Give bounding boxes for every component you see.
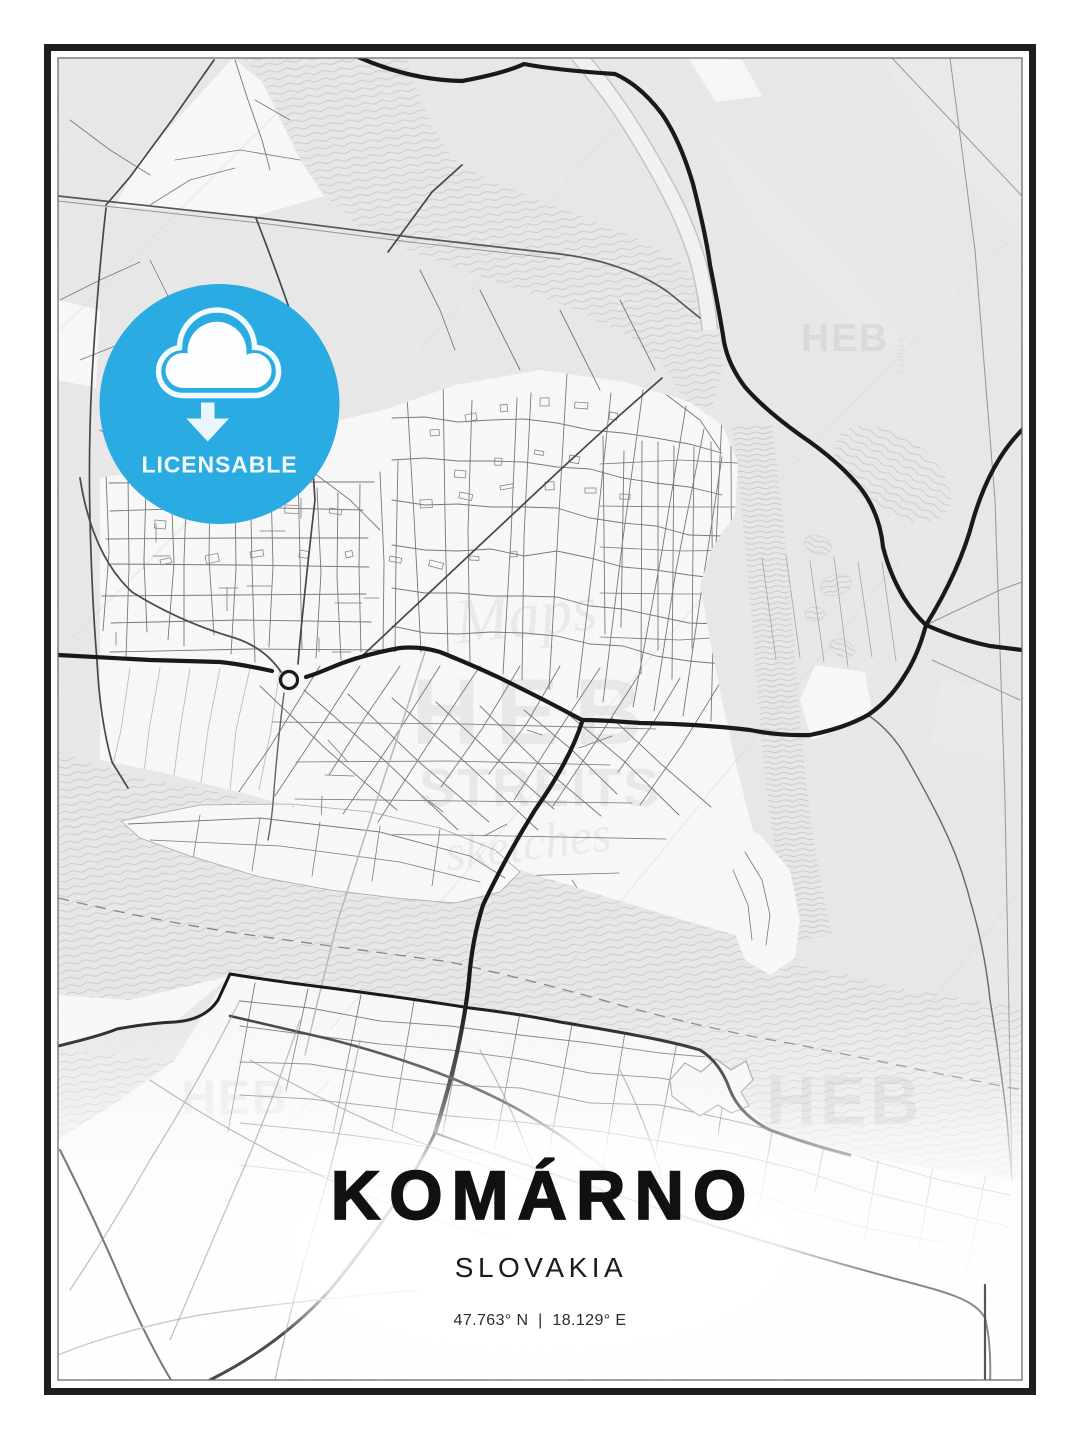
svg-text:47.763° N | 18.129° E: 47.763° N | 18.129° E (454, 1312, 627, 1329)
svg-text:KOMÁRNO: KOMÁRNO (331, 1157, 756, 1234)
svg-text:LICENSABLE: LICENSABLE (142, 452, 298, 478)
svg-text:HEB: HEB (766, 1062, 924, 1139)
svg-text:SLOVAKIA: SLOVAKIA (455, 1252, 627, 1283)
